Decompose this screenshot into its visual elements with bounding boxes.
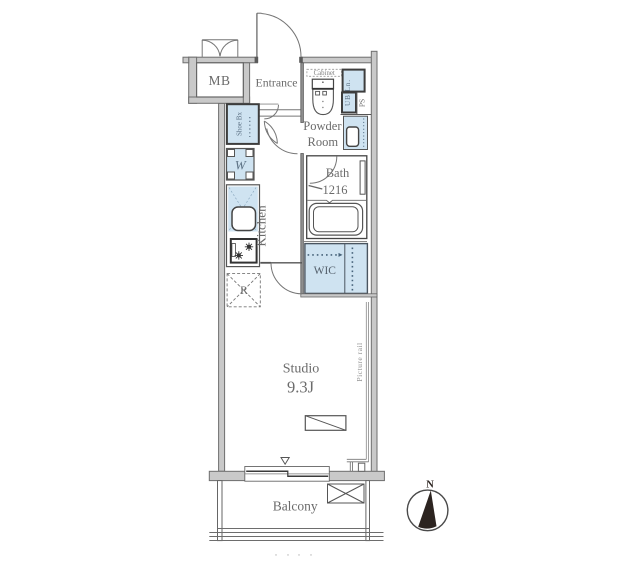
svg-text:Studio: Studio <box>283 362 320 377</box>
svg-text:PS: PS <box>358 99 367 107</box>
svg-text:N: N <box>426 480 434 491</box>
svg-text:Cabinet: Cabinet <box>314 70 335 77</box>
svg-text:Entrance: Entrance <box>256 76 298 90</box>
svg-text:Picture rail: Picture rail <box>355 342 364 382</box>
svg-text:MB: MB <box>208 73 230 88</box>
svg-text:Kitchen: Kitchen <box>254 205 269 247</box>
svg-text:1216: 1216 <box>323 183 348 197</box>
svg-text:Balcony: Balcony <box>273 499 318 514</box>
svg-text:9.3J: 9.3J <box>287 378 315 397</box>
svg-text:W: W <box>235 158 247 173</box>
svg-text:Powder: Powder <box>303 119 342 133</box>
svg-text:R: R <box>240 285 248 297</box>
svg-text:Room: Room <box>308 135 339 149</box>
svg-text:WIC: WIC <box>314 265 337 277</box>
svg-text:UB.Ln.: UB.Ln. <box>344 79 352 106</box>
svg-text:Bath: Bath <box>326 166 350 180</box>
svg-text:Shoe Bx: Shoe Bx <box>236 112 244 136</box>
